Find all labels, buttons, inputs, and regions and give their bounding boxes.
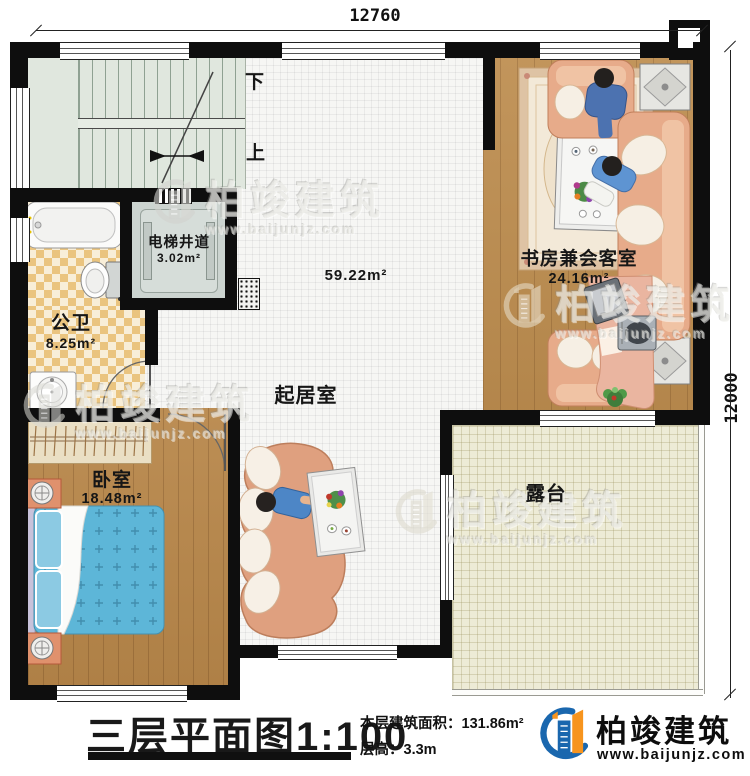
window-stairwell-top bbox=[60, 42, 189, 60]
room-area-elevator: 3.02m² bbox=[133, 252, 225, 265]
dimension-top-value: 12760 bbox=[330, 6, 420, 26]
room-area-bedroom: 18.48m² bbox=[64, 491, 160, 507]
room-area-living: 59.22m² bbox=[318, 268, 394, 285]
room-area-study: 24.16m² bbox=[529, 271, 629, 287]
wall-right bbox=[693, 42, 710, 425]
wall-study-bottom-left bbox=[440, 410, 540, 425]
wall-bedroom-bottom-2 bbox=[187, 685, 240, 700]
company-name: 柏竣建筑 bbox=[596, 706, 732, 751]
stair-down-label: 下 bbox=[240, 72, 270, 93]
wall-bedroom-bottom-1 bbox=[10, 685, 57, 700]
room-label-bedroom: 卧室 bbox=[74, 470, 150, 491]
wall-left-3 bbox=[10, 262, 28, 408]
room-label-elevator: 电梯井道 bbox=[133, 235, 225, 251]
wall-left-4 bbox=[10, 408, 28, 700]
window-living-bottom bbox=[278, 645, 397, 660]
stair-up-label: 上 bbox=[241, 143, 271, 164]
wall-left-1 bbox=[10, 42, 28, 88]
floor-height-text: 层高：3.3m bbox=[360, 738, 437, 759]
room-label-living: 起居室 bbox=[268, 385, 344, 407]
elevator-door bbox=[155, 188, 192, 204]
room-label-terrace: 露台 bbox=[518, 484, 574, 506]
room-label-bathroom: 公卫 bbox=[35, 313, 107, 334]
wall-bathroom-right bbox=[145, 310, 158, 365]
window-bedroom-bottom bbox=[57, 685, 187, 702]
wall-study-left bbox=[483, 58, 495, 150]
window-living-top bbox=[282, 42, 445, 60]
company-website: www.baijunjz.com bbox=[597, 747, 746, 763]
wall-stair-bathroom bbox=[10, 188, 122, 202]
wall-elevator-top-left bbox=[120, 188, 155, 202]
window-bathroom-left bbox=[10, 218, 30, 262]
wall-elevator-right bbox=[225, 188, 237, 310]
wall-bedroom-top bbox=[10, 408, 160, 422]
wall-terrace-left-2 bbox=[440, 600, 452, 658]
room-label-study: 书房兼会客室 bbox=[514, 249, 644, 270]
title-underline bbox=[88, 752, 351, 760]
wall-living-bottom-1 bbox=[228, 645, 278, 658]
wall-top-3 bbox=[445, 42, 540, 58]
dimension-top-line bbox=[36, 30, 702, 31]
room-area-bathroom: 8.25m² bbox=[25, 336, 117, 352]
wall-elevator-top-right bbox=[190, 188, 237, 202]
elevator-control-panel bbox=[238, 278, 260, 310]
dimension-right-line bbox=[730, 50, 731, 698]
window-study-terrace bbox=[540, 410, 655, 427]
floor-plan-canvas: 柏竣建筑 www.baijunjz.com 柏竣建筑 www.baijunjz.… bbox=[0, 0, 750, 776]
wall-terrace-left-1 bbox=[440, 425, 452, 475]
wall-elevator-left bbox=[120, 188, 132, 310]
window-study-top bbox=[540, 42, 640, 60]
door-living-terrace bbox=[440, 475, 454, 600]
dimension-right-value: 12000 bbox=[722, 358, 742, 438]
wall-study-bottom-right bbox=[655, 410, 710, 425]
window-stairwell-left bbox=[10, 88, 30, 188]
company-logo-icon bbox=[536, 704, 594, 766]
wall-elevator-bottom bbox=[120, 298, 237, 310]
wall-top-2 bbox=[189, 42, 282, 58]
floor-area-text: 本层建筑面积：131.86m² bbox=[360, 712, 524, 733]
